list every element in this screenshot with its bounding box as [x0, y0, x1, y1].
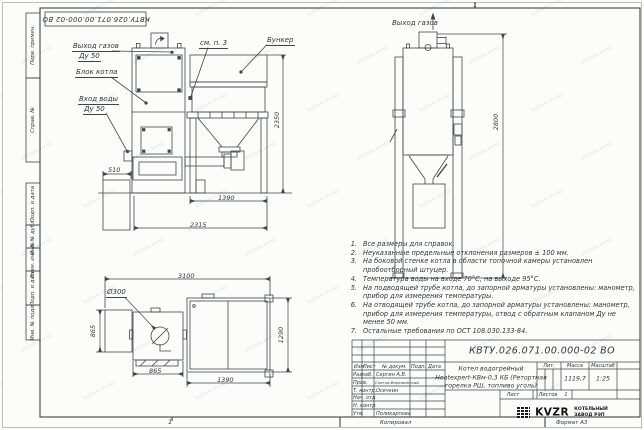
dim-side-height: 2800	[492, 114, 500, 131]
note-item: 6.На отводящей трубе котла, до запорной …	[344, 301, 636, 327]
dim-plan-left-depth: 865	[89, 325, 97, 337]
dim-front-total-width: 2315	[190, 221, 207, 229]
row-approved-name: Поликарпова	[376, 411, 411, 417]
row-checked-label: Пров.	[353, 380, 368, 386]
row-developed-label: Разраб.	[353, 372, 373, 378]
zone-mark-bottom: 1	[168, 418, 172, 426]
col-header-scale: Масштаб	[591, 363, 615, 369]
dim-plan-boiler-width: 865	[149, 367, 161, 375]
title-name-line2: Heatexpert-КВм-0,3 КБ (Ретортная	[435, 374, 546, 381]
dim-front-left-box: 510	[108, 166, 120, 174]
label-water-inlet-dn: Ду 50	[83, 106, 106, 115]
title-name-line3: горелка РШ, топливо уголь)	[445, 383, 537, 390]
sheet-label: Лист	[507, 392, 520, 398]
col-header-lit: Лит.	[543, 363, 555, 369]
company-logo: KVZR КОТЕЛЬНЫЙ ЗАВОД РЭП	[517, 402, 608, 421]
dim-front-height: 2350	[273, 112, 281, 129]
kvzr-logo-text: KVZR	[535, 407, 569, 419]
th-list: Лист	[363, 364, 376, 370]
sheets-value: 1	[564, 392, 567, 398]
row-approved-label: Утв.	[353, 411, 364, 417]
stamp-inv-podl: Инв. № подл.	[30, 304, 36, 341]
mass-value: 1119,7	[564, 376, 586, 383]
note-item: 5.На подводящей трубе котла, до запорной…	[344, 284, 636, 301]
note-item: 2.Неуказанные предельные отклонения разм…	[344, 249, 636, 258]
kvzr-logo-subtitle: КОТЕЛЬНЫЙ ЗАВОД РЭП	[574, 407, 608, 418]
label-water-inlet: Вход воды	[78, 96, 119, 105]
stamp-podp-data-1: Подп. и дата	[30, 186, 36, 222]
kvzr-logo-icon	[517, 407, 530, 418]
stamp-perv-primen: Перв. примен.	[30, 25, 36, 65]
scale-value: 1:25	[596, 376, 610, 383]
label-gas-outlet-dn: Ду 50	[78, 53, 101, 62]
footer-format: Формат А3	[556, 420, 587, 426]
note-item: 3.На боковой стенке котла в области топо…	[344, 257, 636, 274]
row-tcontrol-name: Осечкин	[376, 388, 398, 394]
label-gas-outlet: Выход газов	[72, 43, 120, 52]
row-dept-label: Нач. отд.	[353, 395, 377, 401]
note-item: 7.Остальные требования по ОСТ 108.030.13…	[344, 327, 636, 336]
col-header-mass: Масса	[567, 363, 583, 369]
note-item: 4.Температура воды на входе 70°С, на вых…	[344, 275, 636, 284]
row-ncontrol-label: Н. контр.	[353, 403, 377, 409]
row-tcontrol-label: Т. контр.	[353, 388, 376, 394]
row-checked-name: Снегов-Вережинский	[375, 380, 419, 385]
drawing-sheet: kotlam.kv.kzkotlam.kv.kzkotlam.kv.kzkotl…	[0, 0, 644, 430]
side-view	[388, 13, 507, 279]
footer-copied: Копировал	[380, 420, 411, 426]
th-podp: Подп.	[411, 364, 426, 370]
note-item: 1.Все размеры для справок.	[344, 240, 636, 249]
label-hole-diameter: Ø300	[106, 289, 127, 298]
label-see-note-3: см. п. 3	[199, 40, 228, 49]
label-boiler-block: Блок котла	[75, 69, 118, 78]
title-name-line1: Котел водогрейный	[459, 366, 524, 373]
dim-front-hopper-width: 1390	[218, 194, 235, 202]
zone-mark-top: 1	[473, 1, 477, 9]
row-developed-name: Сергин А.В.	[376, 372, 407, 378]
dim-plan-total-width: 3100	[178, 272, 195, 280]
technical-notes: 1.Все размеры для справок. 2.Неуказанные…	[344, 240, 636, 336]
stamp-podp-data-2: Подп. и дата	[30, 270, 36, 306]
title-doc-number: КВТУ.026.071.00.000-02 ВО	[469, 346, 615, 357]
label-side-gas-outlet: Выход газов	[392, 20, 438, 27]
th-docnum: № докум.	[382, 364, 407, 370]
top-doc-number: КВТУ.026.071.00.000-02 ВО	[42, 15, 150, 23]
front-view	[98, 33, 292, 231]
sheets-label: Листов	[539, 392, 558, 398]
dim-plan-hopper-depth: 1290	[277, 327, 285, 344]
th-data: Дата	[428, 364, 441, 370]
dim-plan-hopper-width: 1390	[217, 376, 234, 384]
stamp-sprav-no: Справ. №	[30, 107, 36, 133]
label-hopper: Бункер	[266, 37, 295, 46]
